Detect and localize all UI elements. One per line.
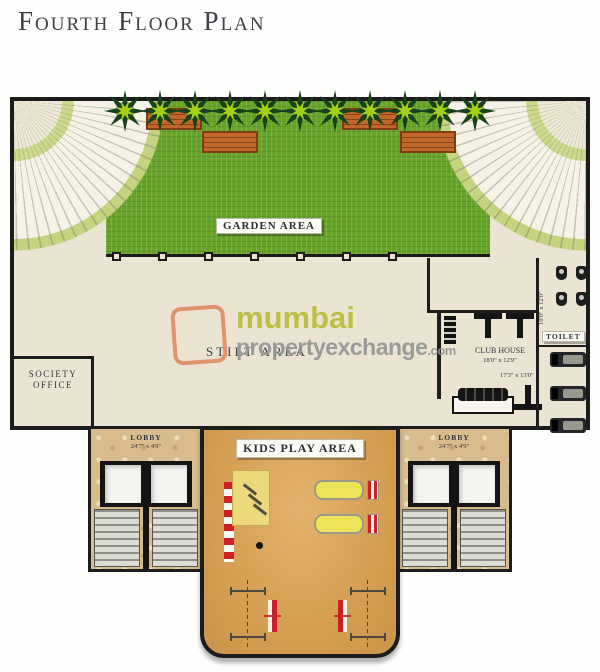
wall-column xyxy=(342,252,351,261)
play-post xyxy=(256,542,263,549)
lobby-wing-left: LOBBY 24'7" x 4'9" xyxy=(88,426,204,572)
wall-column xyxy=(250,252,259,261)
toilet-fixture-icon xyxy=(576,292,587,306)
staircase xyxy=(152,509,198,567)
core-wall xyxy=(143,507,149,569)
watermark-brand-bottom: propertyexchange.com xyxy=(236,334,456,361)
treadmill-icon xyxy=(550,418,586,433)
lobby-right-dims: 24'7" x 4'9" xyxy=(399,443,509,451)
treadmill-icon xyxy=(550,386,586,401)
page-title: Fourth Floor Plan xyxy=(18,6,266,37)
garden-area-label: GARDEN AREA xyxy=(216,218,322,234)
lobby-wing-right: LOBBY 24'7" x 4'9" xyxy=(396,426,512,572)
treadmill-icon xyxy=(550,352,586,367)
society-office-wall xyxy=(14,356,92,359)
staircase xyxy=(94,509,140,567)
toilet-label: TOILET xyxy=(542,331,585,342)
kids-play-area: KIDS PLAY AREA xyxy=(200,426,400,658)
lobby-left-label: LOBBY xyxy=(91,433,201,442)
weight-bench-icon xyxy=(506,313,534,339)
striped-play-post xyxy=(268,600,277,632)
toilet-fixture-icon xyxy=(556,292,567,306)
lobby-left-dims: 24'7" x 4'9" xyxy=(91,443,201,451)
swing-frame xyxy=(350,580,386,650)
watermark: mumbai propertyexchange.com xyxy=(172,302,442,370)
garden-bench xyxy=(400,131,456,153)
wall-column xyxy=(112,252,121,261)
club-house-label: CLUB HOUSE xyxy=(452,346,548,356)
elevator xyxy=(459,465,495,503)
play-lounger xyxy=(314,514,364,534)
play-lounger xyxy=(314,480,364,500)
society-office-wall xyxy=(91,356,94,426)
elevator-block xyxy=(100,461,192,507)
palm-tree-icon xyxy=(454,90,496,132)
building-outline: GARDEN AREA STILT AREA SOCIETY OFFICE CL… xyxy=(10,97,590,430)
wall-column xyxy=(204,252,213,261)
elevator xyxy=(105,465,141,503)
toilet-fixture-icon xyxy=(556,266,567,280)
club-house-dims: 18'0" x 12'9" xyxy=(452,357,548,365)
play-lounger-end xyxy=(367,480,379,500)
garden-bench xyxy=(202,131,258,153)
staircase xyxy=(460,509,506,567)
wall-column xyxy=(158,252,167,261)
wall-column xyxy=(388,252,397,261)
watermark-tld: .com xyxy=(427,343,455,358)
striped-play-post xyxy=(338,600,347,632)
swing-frame xyxy=(230,580,266,650)
lobby-right-label: LOBBY xyxy=(399,433,509,442)
elevator-block xyxy=(408,461,500,507)
toilet-dims: 10'0" x 12'0" xyxy=(538,261,545,325)
toilet-wall xyxy=(536,345,586,347)
weight-bench-icon xyxy=(474,313,502,339)
elevator xyxy=(151,465,187,503)
wall-column xyxy=(296,252,305,261)
watermark-logo-icon xyxy=(170,304,228,366)
kids-play-area-label: KIDS PLAY AREA xyxy=(236,439,364,458)
society-office-label: SOCIETY OFFICE xyxy=(16,369,90,392)
watermark-brand-top: mumbai xyxy=(236,300,355,336)
gym-room-dims: 17'3" x 13'0" xyxy=(500,372,534,380)
core-wall xyxy=(451,507,457,569)
barbell-rack-icon xyxy=(458,388,508,401)
toilet-fixture-icon xyxy=(576,266,587,280)
play-lounger-end xyxy=(367,514,379,534)
elevator xyxy=(413,465,449,503)
staircase xyxy=(402,509,448,567)
